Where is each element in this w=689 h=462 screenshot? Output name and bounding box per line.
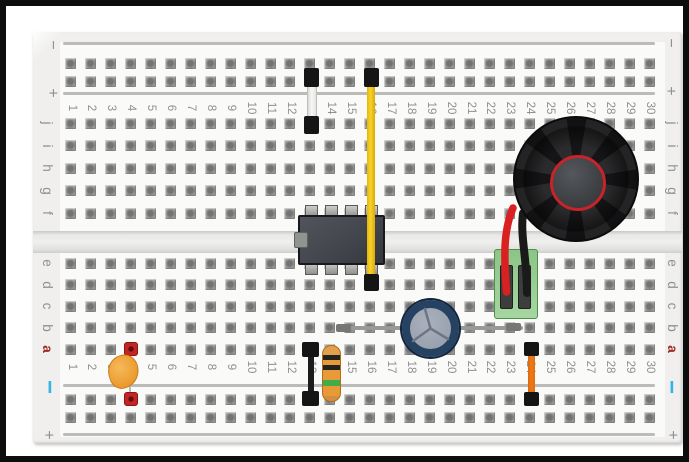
column-number-bottom: 5 xyxy=(145,363,157,369)
breadboard-hole xyxy=(624,279,635,290)
breadboard-hole xyxy=(404,118,415,129)
breadboard-hole xyxy=(304,412,315,423)
breadboard-hole xyxy=(384,118,395,129)
breadboard-hole xyxy=(125,118,136,129)
breadboard-hole xyxy=(185,344,196,355)
breadboard-hole xyxy=(225,279,236,290)
column-number-top: 14 xyxy=(324,101,336,114)
breadboard-hole xyxy=(265,208,276,219)
breadboard-hole xyxy=(125,185,136,196)
column-number-bottom: 8 xyxy=(204,363,216,369)
breadboard-hole xyxy=(384,163,395,174)
breadboard-hole xyxy=(65,118,76,129)
breadboard-hole xyxy=(624,258,635,269)
breadboard-hole xyxy=(105,258,116,269)
column-number-bottom: 9 xyxy=(224,363,236,369)
column-number-bottom: 2 xyxy=(85,363,97,369)
top-rail-minus-marker: − xyxy=(44,40,60,49)
breadboard-hole xyxy=(284,118,295,129)
breadboard-hole xyxy=(424,208,435,219)
column-number-top: 1 xyxy=(65,104,77,110)
breadboard-hole xyxy=(185,163,196,174)
breadboard-hole xyxy=(644,301,655,312)
column-number-top: 29 xyxy=(623,101,635,114)
breadboard-hole xyxy=(85,163,96,174)
breadboard-hole xyxy=(504,76,515,87)
breadboard-hole xyxy=(604,58,615,69)
row-label-i: i xyxy=(665,144,679,147)
breadboard-hole xyxy=(245,258,256,269)
column-number-bottom: 21 xyxy=(464,360,476,373)
column-number-bottom: 10 xyxy=(244,360,256,373)
breadboard-hole xyxy=(85,344,96,355)
breadboard-hole xyxy=(65,140,76,151)
breadboard-hole xyxy=(404,394,415,405)
breadboard-hole xyxy=(105,58,116,69)
breadboard-hole xyxy=(265,58,276,69)
breadboard-hole xyxy=(225,301,236,312)
breadboard-hole xyxy=(85,394,96,405)
breadboard-hole xyxy=(245,301,256,312)
column-number-bottom: 27 xyxy=(583,360,595,373)
row-label-b: b xyxy=(665,324,679,332)
breadboard-hole xyxy=(444,118,455,129)
breadboard-hole xyxy=(344,394,355,405)
breadboard-hole xyxy=(504,344,515,355)
breadboard-hole xyxy=(484,394,495,405)
breadboard-hole xyxy=(225,140,236,151)
column-number-top: 18 xyxy=(404,101,416,114)
breadboard-hole xyxy=(504,394,515,405)
breadboard-hole xyxy=(185,58,196,69)
breadboard-hole xyxy=(145,76,156,87)
breadboard-hole xyxy=(185,118,196,129)
breadboard-hole xyxy=(384,344,395,355)
breadboard-hole xyxy=(65,412,76,423)
breadboard-hole xyxy=(125,140,136,151)
column-number-top: 30 xyxy=(643,101,655,114)
breadboard-hole xyxy=(65,301,76,312)
breadboard-hole xyxy=(404,163,415,174)
top-rail-minus-marker: − xyxy=(662,38,678,47)
disc-capacitor-bottom-pad xyxy=(124,392,138,406)
breadboard-hole xyxy=(644,163,655,174)
breadboard-hole xyxy=(484,185,495,196)
breadboard-hole xyxy=(364,58,375,69)
row-label-e: e xyxy=(40,259,54,267)
breadboard-hole xyxy=(65,58,76,69)
breadboard-hole xyxy=(225,394,236,405)
row-label-e: e xyxy=(665,259,679,267)
breadboard-hole xyxy=(464,412,475,423)
breadboard-hole xyxy=(65,279,76,290)
column-number-top: 20 xyxy=(444,101,456,114)
breadboard-hole xyxy=(384,301,395,312)
breadboard-hole xyxy=(564,58,575,69)
breadboard-hole xyxy=(644,258,655,269)
breadboard-hole xyxy=(484,163,495,174)
jumper-wire-white-bottom-connector xyxy=(304,116,319,134)
column-number-top: 4 xyxy=(125,104,137,110)
breadboard-hole xyxy=(245,58,256,69)
breadboard-hole xyxy=(344,412,355,423)
breadboard-hole xyxy=(344,118,355,129)
breadboard-hole xyxy=(544,76,555,87)
breadboard-hole xyxy=(484,412,495,423)
column-number-top: 10 xyxy=(244,101,256,114)
breadboard-hole xyxy=(265,163,276,174)
breadboard-hole xyxy=(145,163,156,174)
breadboard-hole xyxy=(424,258,435,269)
breadboard-hole xyxy=(544,58,555,69)
breadboard-hole xyxy=(125,301,136,312)
column-number-top: 22 xyxy=(484,101,496,114)
breadboard-hole xyxy=(564,394,575,405)
breadboard-hole xyxy=(265,322,276,333)
breadboard-hole xyxy=(404,58,415,69)
column-number-top: 25 xyxy=(544,101,556,114)
breadboard-hole xyxy=(85,301,96,312)
breadboard-hole xyxy=(165,279,176,290)
breadboard-hole xyxy=(424,118,435,129)
breadboard-hole xyxy=(265,118,276,129)
breadboard-hole xyxy=(364,394,375,405)
column-number-top: 5 xyxy=(145,104,157,110)
column-number-bottom: 15 xyxy=(344,360,356,373)
breadboard-hole xyxy=(604,258,615,269)
breadboard-hole xyxy=(344,279,355,290)
breadboard-hole xyxy=(624,412,635,423)
breadboard-hole xyxy=(624,76,635,87)
jumper-wire-yellow xyxy=(367,78,375,281)
breadboard-hole xyxy=(284,394,295,405)
breadboard-hole xyxy=(564,76,575,87)
breadboard-hole xyxy=(644,185,655,196)
row-label-a: a xyxy=(40,345,54,353)
breadboard-hole xyxy=(604,322,615,333)
column-number-bottom: 12 xyxy=(284,360,296,373)
breadboard-hole xyxy=(165,140,176,151)
breadboard-hole xyxy=(284,208,295,219)
breadboard-hole xyxy=(245,279,256,290)
breadboard-hole xyxy=(105,279,116,290)
breadboard-hole xyxy=(584,394,595,405)
breadboard-hole xyxy=(444,185,455,196)
breadboard-hole xyxy=(604,76,615,87)
breadboard-hole xyxy=(65,258,76,269)
breadboard-hole xyxy=(145,185,156,196)
breadboard-hole xyxy=(225,58,236,69)
breadboard-hole xyxy=(165,118,176,129)
row-label-b: b xyxy=(40,324,54,332)
breadboard-hole xyxy=(344,163,355,174)
breadboard-hole xyxy=(324,301,335,312)
breadboard-hole xyxy=(85,185,96,196)
breadboard-hole xyxy=(105,185,116,196)
column-number-top: 11 xyxy=(264,102,276,114)
row-label-c: c xyxy=(665,303,679,310)
breadboard-hole xyxy=(564,344,575,355)
column-number-top: 12 xyxy=(284,101,296,114)
breadboard-hole xyxy=(205,344,216,355)
breadboard-hole xyxy=(105,140,116,151)
breadboard-hole xyxy=(464,344,475,355)
breadboard-hole xyxy=(464,163,475,174)
jumper-wire-black-bottom-connector xyxy=(302,391,319,406)
breadboard-hole xyxy=(284,76,295,87)
breadboard-hole xyxy=(344,58,355,69)
column-number-bottom: 23 xyxy=(504,360,516,373)
column-number-bottom: 25 xyxy=(544,360,556,373)
breadboard-hole xyxy=(245,140,256,151)
breadboard-hole xyxy=(105,301,116,312)
breadboard-hole xyxy=(245,412,256,423)
breadboard-hole xyxy=(165,163,176,174)
breadboard-hole xyxy=(85,140,96,151)
breadboard-hole xyxy=(125,208,136,219)
row-label-g: g xyxy=(665,187,679,195)
breadboard-hole xyxy=(105,394,116,405)
jumper-wire-yellow-bottom-connector xyxy=(364,274,379,291)
breadboard-hole xyxy=(424,58,435,69)
row-label-h: h xyxy=(665,164,679,172)
row-label-d: d xyxy=(40,281,54,289)
breadboard-hole xyxy=(284,258,295,269)
breadboard-hole xyxy=(205,185,216,196)
breadboard-hole xyxy=(284,58,295,69)
breadboard-hole xyxy=(644,118,655,129)
column-number-top: 15 xyxy=(344,101,356,114)
breadboard-hole xyxy=(624,301,635,312)
breadboard-hole xyxy=(484,76,495,87)
breadboard-hole xyxy=(304,279,315,290)
breadboard-hole xyxy=(105,118,116,129)
breadboard-hole xyxy=(225,208,236,219)
breadboard-hole xyxy=(245,185,256,196)
breadboard-hole xyxy=(304,140,315,151)
breadboard-hole xyxy=(604,301,615,312)
breadboard-hole xyxy=(185,185,196,196)
breadboard-hole xyxy=(384,258,395,269)
breadboard-hole xyxy=(85,118,96,129)
jumper-wire-black-top-connector xyxy=(302,342,319,357)
breadboard-hole xyxy=(245,322,256,333)
breadboard-hole xyxy=(265,76,276,87)
breadboard-hole xyxy=(284,140,295,151)
breadboard-hole xyxy=(604,412,615,423)
breadboard-hole xyxy=(584,258,595,269)
breadboard-hole xyxy=(484,140,495,151)
row-label-d: d xyxy=(665,281,679,289)
breadboard-hole xyxy=(424,163,435,174)
column-number-bottom: 29 xyxy=(623,360,635,373)
breadboard-hole xyxy=(145,208,156,219)
breadboard-hole xyxy=(125,279,136,290)
breadboard-hole xyxy=(125,163,136,174)
breadboard-hole xyxy=(524,76,535,87)
column-number-bottom: 7 xyxy=(184,363,196,369)
breadboard-hole xyxy=(304,185,315,196)
breadboard-hole xyxy=(165,344,176,355)
breadboard-diagram: 1122334455667788991010111112121313141415… xyxy=(0,0,689,462)
breadboard-hole xyxy=(644,208,655,219)
bare-wire-gray-right-end xyxy=(506,323,521,331)
breadboard-hole xyxy=(225,344,236,355)
breadboard-hole xyxy=(444,208,455,219)
column-number-top: 6 xyxy=(165,104,177,110)
breadboard-hole xyxy=(404,279,415,290)
breadboard-hole xyxy=(165,301,176,312)
breadboard-hole xyxy=(145,140,156,151)
column-number-bottom: 16 xyxy=(364,360,376,373)
breadboard-hole xyxy=(65,322,76,333)
column-number-bottom: 20 xyxy=(444,360,456,373)
breadboard-hole xyxy=(245,394,256,405)
breadboard-hole xyxy=(324,76,335,87)
column-number-top: 3 xyxy=(105,104,117,110)
breadboard-hole xyxy=(185,394,196,405)
breadboard-hole xyxy=(624,394,635,405)
row-label-f: f xyxy=(665,211,679,215)
breadboard-hole xyxy=(265,140,276,151)
breadboard-hole xyxy=(444,394,455,405)
breadboard-hole xyxy=(484,58,495,69)
breadboard-hole xyxy=(225,322,236,333)
breadboard-hole xyxy=(185,322,196,333)
breadboard-hole xyxy=(65,394,76,405)
jumper-wire-yellow-top-connector xyxy=(364,68,379,87)
column-number-bottom: 26 xyxy=(564,360,576,373)
breadboard-hole xyxy=(205,279,216,290)
breadboard-hole xyxy=(584,301,595,312)
row-label-j: j xyxy=(665,122,679,125)
breadboard-hole xyxy=(245,118,256,129)
breadboard-hole xyxy=(544,394,555,405)
breadboard-hole xyxy=(324,163,335,174)
breadboard-hole xyxy=(444,76,455,87)
breadboard-hole xyxy=(324,140,335,151)
breadboard-hole xyxy=(165,394,176,405)
breadboard-hole xyxy=(284,301,295,312)
breadboard-hole xyxy=(145,118,156,129)
breadboard-hole xyxy=(284,163,295,174)
breadboard-hole xyxy=(165,412,176,423)
breadboard-hole xyxy=(265,279,276,290)
breadboard-hole xyxy=(65,76,76,87)
bottom-rail-minus-marker: − xyxy=(37,380,61,394)
breadboard-hole xyxy=(185,258,196,269)
breadboard-hole xyxy=(205,208,216,219)
breadboard-hole xyxy=(344,301,355,312)
breadboard-hole xyxy=(205,118,216,129)
breadboard-hole xyxy=(444,163,455,174)
breadboard-hole xyxy=(504,58,515,69)
breadboard-hole xyxy=(105,163,116,174)
breadboard-hole xyxy=(165,208,176,219)
breadboard-hole xyxy=(364,412,375,423)
column-number-top: 27 xyxy=(583,101,595,114)
breadboard-hole xyxy=(464,58,475,69)
column-number-top: 17 xyxy=(384,101,396,114)
breadboard-hole xyxy=(125,412,136,423)
breadboard-hole xyxy=(544,344,555,355)
row-label-i: i xyxy=(40,144,54,147)
breadboard-hole xyxy=(384,185,395,196)
jumper-wire-white-top-connector xyxy=(304,68,319,87)
breadboard-hole xyxy=(644,344,655,355)
breadboard-hole xyxy=(125,322,136,333)
breadboard-hole xyxy=(504,140,515,151)
column-number-top: 7 xyxy=(184,104,196,110)
breadboard-hole xyxy=(304,301,315,312)
breadboard-hole xyxy=(265,258,276,269)
breadboard-hole xyxy=(544,301,555,312)
breadboard-hole xyxy=(464,258,475,269)
breadboard-hole xyxy=(404,412,415,423)
breadboard-hole xyxy=(284,279,295,290)
breadboard-hole xyxy=(105,76,116,87)
breadboard-hole xyxy=(205,412,216,423)
column-number-bottom: 30 xyxy=(643,360,655,373)
breadboard-hole xyxy=(504,118,515,129)
breadboard-hole xyxy=(85,258,96,269)
breadboard-hole xyxy=(384,208,395,219)
column-number-bottom: 1 xyxy=(65,363,77,369)
breadboard-hole xyxy=(205,322,216,333)
breadboard-hole xyxy=(145,394,156,405)
ic-pin1-notch xyxy=(294,232,308,248)
breadboard-hole xyxy=(484,118,495,129)
breadboard-hole xyxy=(644,76,655,87)
column-number-bottom: 18 xyxy=(404,360,416,373)
row-label-j: j xyxy=(40,122,54,125)
breadboard-hole xyxy=(404,258,415,269)
breadboard-hole xyxy=(265,412,276,423)
breadboard-hole xyxy=(464,118,475,129)
breadboard-hole xyxy=(105,344,116,355)
column-number-top: 8 xyxy=(204,104,216,110)
breadboard-hole xyxy=(624,322,635,333)
breadboard-hole xyxy=(464,185,475,196)
breadboard-hole xyxy=(584,58,595,69)
breadboard-hole xyxy=(105,322,116,333)
breadboard-hole xyxy=(324,118,335,129)
breadboard-hole xyxy=(384,58,395,69)
breadboard-hole xyxy=(205,58,216,69)
row-label-a: a xyxy=(665,345,679,353)
breadboard-hole xyxy=(644,412,655,423)
breadboard-hole xyxy=(65,344,76,355)
resistor xyxy=(322,345,341,402)
breadboard-hole xyxy=(384,279,395,290)
breadboard-hole xyxy=(524,118,535,129)
breadboard-hole xyxy=(85,58,96,69)
breadboard-hole xyxy=(225,76,236,87)
breadboard-hole xyxy=(524,58,535,69)
column-number-bottom: 28 xyxy=(603,360,615,373)
breadboard-hole xyxy=(544,322,555,333)
breadboard-hole xyxy=(624,118,635,129)
breadboard-hole xyxy=(464,140,475,151)
top-rail-plus-marker: + xyxy=(44,88,60,97)
breadboard-hole xyxy=(624,344,635,355)
breadboard-hole xyxy=(604,394,615,405)
breadboard-hole xyxy=(324,412,335,423)
breadboard-hole xyxy=(364,344,375,355)
breadboard-hole xyxy=(65,163,76,174)
breadboard-hole xyxy=(584,412,595,423)
breadboard-hole xyxy=(384,140,395,151)
